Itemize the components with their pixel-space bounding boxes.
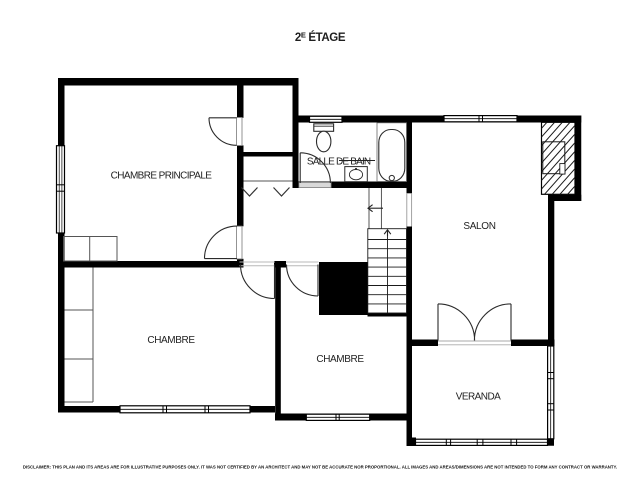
svg-text:CHAMBRE: CHAMBRE xyxy=(316,354,364,365)
svg-text:CHAMBRE PRINCIPALE: CHAMBRE PRINCIPALE xyxy=(111,171,213,182)
svg-text:CHAMBRE: CHAMBRE xyxy=(147,335,195,346)
svg-text:VERANDA: VERANDA xyxy=(456,392,501,403)
svg-text:SALON: SALON xyxy=(463,221,495,232)
svg-text:DISCLAIMER: THIS PLAN AND ITS: DISCLAIMER: THIS PLAN AND ITS AREAS ARE … xyxy=(23,465,617,470)
svg-text:SALLE DE BAIN: SALLE DE BAIN xyxy=(307,156,371,167)
